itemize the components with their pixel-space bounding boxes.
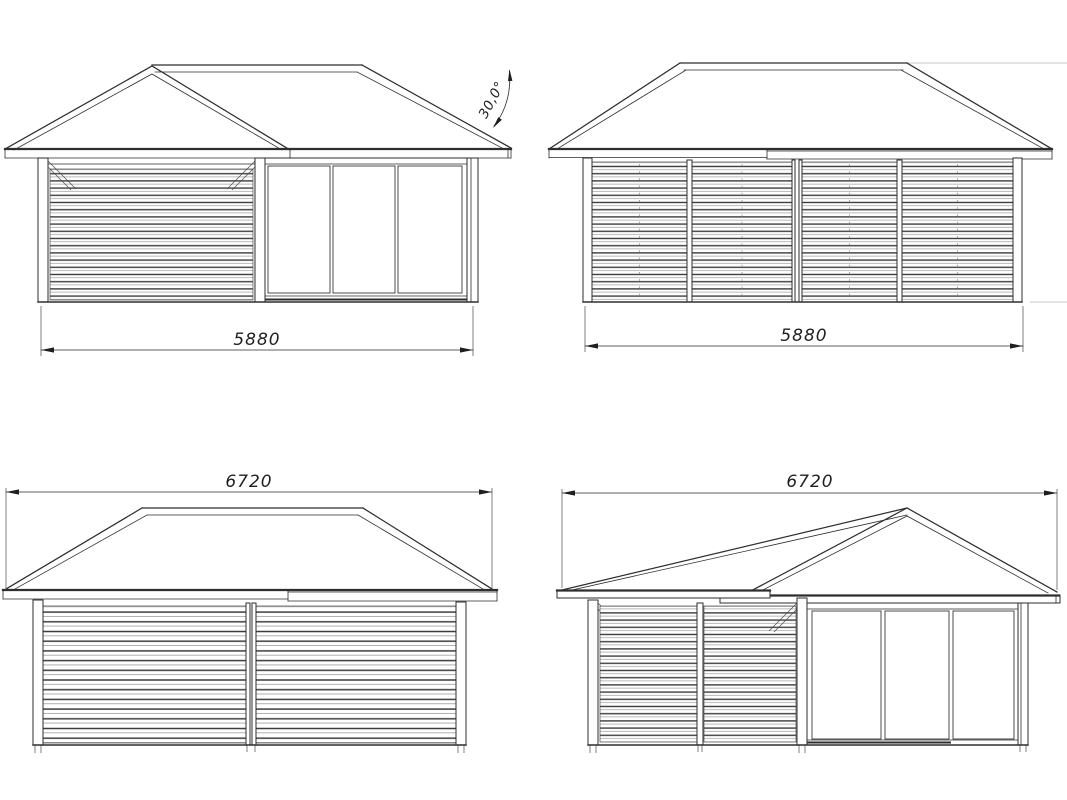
center-post (255, 158, 265, 302)
roof-angle-label: 30,0° (476, 79, 509, 121)
slat-panel (704, 606, 796, 742)
dimension-label-side2-width: 6720 (786, 472, 833, 492)
slat-panel (50, 169, 253, 300)
wall-slatted-panels (33, 600, 466, 753)
elevation-drawing-sheet: 5880 30,0° (0, 0, 1067, 800)
view-front-elevation: 5880 30,0° (5, 65, 512, 356)
slat-panel (256, 606, 456, 743)
corner-post (467, 158, 478, 302)
glass-door-panel (885, 611, 949, 739)
glass-door-panel (398, 166, 462, 293)
glass-door-panel (268, 166, 330, 293)
dimension-width: 6720 (6, 472, 492, 588)
dimension-label-side-width: 5880 (780, 326, 827, 346)
corner-post (38, 158, 48, 302)
wall-glazed-section (265, 158, 478, 302)
roof-angle-annotation: 30,0° (476, 69, 513, 128)
view-side-elevation: 5880 (549, 63, 1067, 352)
elevation-drawing-canvas: 5880 30,0° (0, 0, 1067, 800)
wall-post (792, 160, 795, 302)
corner-post (33, 600, 43, 745)
glass-door-panel (333, 166, 395, 293)
view-rear-elevation: 6720 (3, 472, 497, 753)
roof (3, 508, 497, 601)
corner-post (1018, 603, 1028, 745)
dimension-label-rear-width: 6720 (225, 472, 272, 492)
corner-post (583, 158, 592, 302)
center-post (246, 603, 250, 745)
wall-slatted-section (38, 158, 265, 302)
slat-panel (43, 606, 246, 743)
wall-slatted-section (588, 598, 807, 745)
center-post (797, 598, 807, 745)
slat-panel (600, 606, 697, 742)
glass-door-panel (953, 611, 1014, 739)
corner-post (456, 602, 466, 745)
corner-post (1013, 158, 1022, 302)
slat-panel (902, 162, 1013, 302)
dimension-width: 5880 (41, 306, 473, 356)
slat-panel (592, 162, 687, 302)
wall-post (799, 160, 802, 302)
center-post (252, 603, 256, 745)
slat-panel (692, 162, 792, 302)
roof (549, 63, 1067, 159)
dimension-width: 5880 (585, 306, 1023, 352)
corner-post (588, 600, 598, 745)
wall-slatted-panels (583, 158, 1022, 302)
wall-post (897, 160, 902, 302)
wall-glazed-section (807, 603, 1028, 745)
roof (557, 508, 1060, 603)
slat-panel (802, 162, 897, 302)
dimension-label-front-width: 5880 (233, 330, 280, 350)
wall-post (697, 603, 703, 745)
wall-post (687, 160, 692, 302)
glass-door-panel (812, 611, 881, 739)
view-side-elevation-2: 6720 (557, 472, 1060, 753)
roof (5, 65, 511, 158)
